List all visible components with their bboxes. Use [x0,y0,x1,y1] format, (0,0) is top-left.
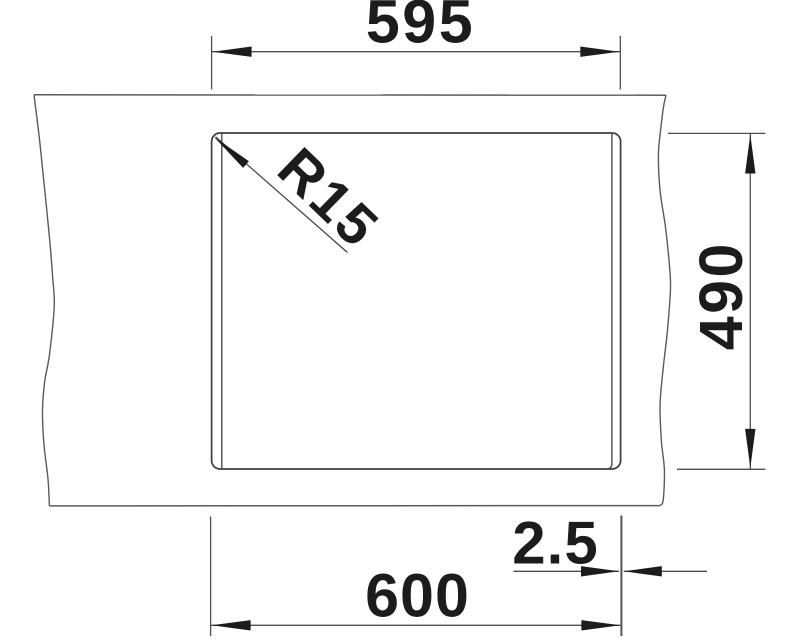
svg-text:595: 595 [366,0,475,56]
svg-text:600: 600 [365,561,470,629]
svg-text:490: 490 [687,241,755,350]
svg-text:2.5: 2.5 [512,510,598,577]
